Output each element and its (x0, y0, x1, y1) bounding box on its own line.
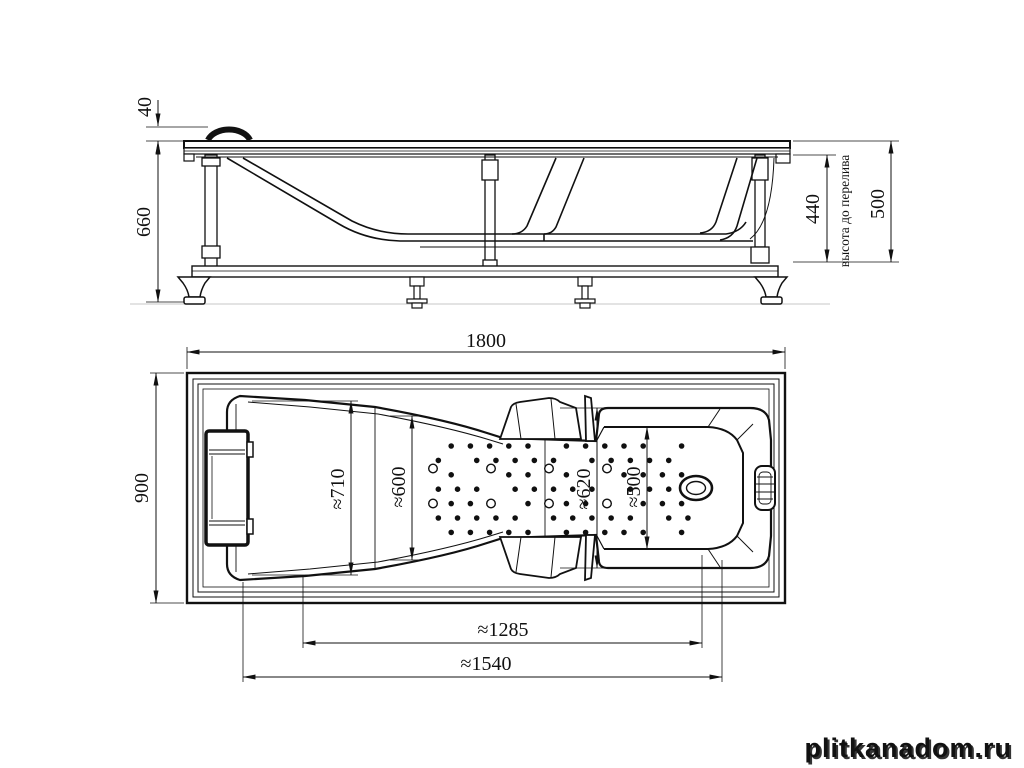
jet-dot (641, 444, 646, 449)
adjustable-foot (575, 277, 595, 308)
jet-dot (622, 444, 627, 449)
jet-dot (487, 444, 492, 449)
headrest-plan (206, 431, 253, 545)
jet-dot (679, 501, 684, 506)
jet-dot (455, 516, 460, 521)
jet-nozzle-ring (429, 499, 438, 508)
jet-dot (507, 444, 512, 449)
jet-dot (532, 458, 537, 463)
jet-dot (660, 473, 665, 478)
jet-dot (590, 458, 595, 463)
jet-nozzle-ring (603, 499, 612, 508)
jet-dot (507, 473, 512, 478)
jet-dot (474, 516, 479, 521)
dim-foot-inner-width: ≈500 (623, 467, 645, 508)
jet-nozzle-ring (603, 464, 612, 473)
dim-foot-outer-width: ≈620 (573, 469, 595, 510)
jet-dot (590, 516, 595, 521)
jet-nozzle-ring (487, 499, 496, 508)
jet-dot (564, 501, 569, 506)
jet-dot (603, 444, 608, 449)
jet-dot (641, 530, 646, 535)
jet-dot (628, 458, 633, 463)
decorative-foot-left (178, 277, 210, 297)
jet-dot (564, 530, 569, 535)
jet-dot (551, 516, 556, 521)
dim-bottom-length: ≈1285 (478, 619, 529, 641)
jet-dot (494, 458, 499, 463)
jet-dot (686, 516, 691, 521)
jet-dot (551, 458, 556, 463)
jet-nozzle-ring (545, 464, 554, 473)
jet-dot (513, 458, 518, 463)
dim-total-height: 660 (133, 207, 155, 237)
jet-dot (468, 530, 473, 535)
jet-dot (449, 530, 454, 535)
jet-dot (474, 487, 479, 492)
jet-dot (603, 530, 608, 535)
support-posts (202, 155, 769, 268)
jet-dot (666, 458, 671, 463)
jet-dot (647, 458, 652, 463)
jet-dot (436, 487, 441, 492)
overflow-fitting (755, 466, 775, 510)
dim-head-inner-width: ≈710 (327, 469, 349, 510)
jet-dot (526, 473, 531, 478)
base-frame (178, 266, 787, 308)
jet-dot (436, 516, 441, 521)
jet-dot (526, 444, 531, 449)
dim-length: 1800 (466, 330, 506, 352)
jet-dot (564, 473, 569, 478)
adjustable-foot (407, 277, 427, 308)
dim-overflow-height: 440 (802, 194, 824, 224)
dim-shell-length: ≈1540 (461, 653, 512, 675)
jet-dot (468, 444, 473, 449)
jet-dot (436, 458, 441, 463)
jet-dot (666, 487, 671, 492)
jet-dot (526, 501, 531, 506)
drawing-canvas: 40 660 440 высота до перелива 500 (0, 0, 1024, 768)
jet-dot (583, 530, 588, 535)
bathtub-technical-drawing: 40 660 440 высота до перелива 500 (0, 0, 1024, 768)
dim-width: 900 (131, 473, 153, 503)
jet-dot (487, 530, 492, 535)
jet-dot (564, 444, 569, 449)
jet-dot (507, 530, 512, 535)
jet-dot (468, 501, 473, 506)
decorative-foot-right (755, 277, 787, 297)
jet-dot (513, 487, 518, 492)
jet-dot (583, 444, 588, 449)
jet-dot (609, 458, 614, 463)
jet-dot (474, 458, 479, 463)
jet-dot (513, 516, 518, 521)
jet-dot (526, 530, 531, 535)
drain (680, 476, 712, 500)
jet-dot (647, 487, 652, 492)
dim-rim-to-bottom: 500 (867, 189, 889, 219)
dim-headrest-height: 40 (134, 97, 156, 117)
jet-dot (449, 444, 454, 449)
jet-dot (679, 530, 684, 535)
jet-dot (622, 530, 627, 535)
jet-dot (609, 516, 614, 521)
jet-dot (570, 516, 575, 521)
dim-mid-inner-width: ≈600 (388, 467, 410, 508)
watermark-text: plitkanadom.ru (804, 733, 1012, 763)
jet-nozzle-ring (429, 464, 438, 473)
jet-dot (551, 487, 556, 492)
headrest-side (208, 129, 250, 140)
jet-dot (628, 516, 633, 521)
plan-view: 1800 900 ≈710 ≈600 ≈620 ≈500 ≈1285 ≈1540 (131, 330, 785, 682)
jet-dot (532, 487, 537, 492)
jet-dot (666, 516, 671, 521)
jet-dot (455, 487, 460, 492)
jet-dot (679, 444, 684, 449)
overflow-label: высота до перелива (837, 155, 852, 268)
watermark: plitkanadom.ru plitkanadom.ru (804, 733, 1014, 765)
jet-nozzle-ring (487, 464, 496, 473)
jet-nozzle-ring (545, 499, 554, 508)
jet-dot (660, 501, 665, 506)
jet-dot (494, 516, 499, 521)
jet-dot (449, 473, 454, 478)
side-view: 40 660 440 высота до перелива 500 (130, 97, 899, 308)
jet-dot (449, 501, 454, 506)
jet-dot (679, 473, 684, 478)
